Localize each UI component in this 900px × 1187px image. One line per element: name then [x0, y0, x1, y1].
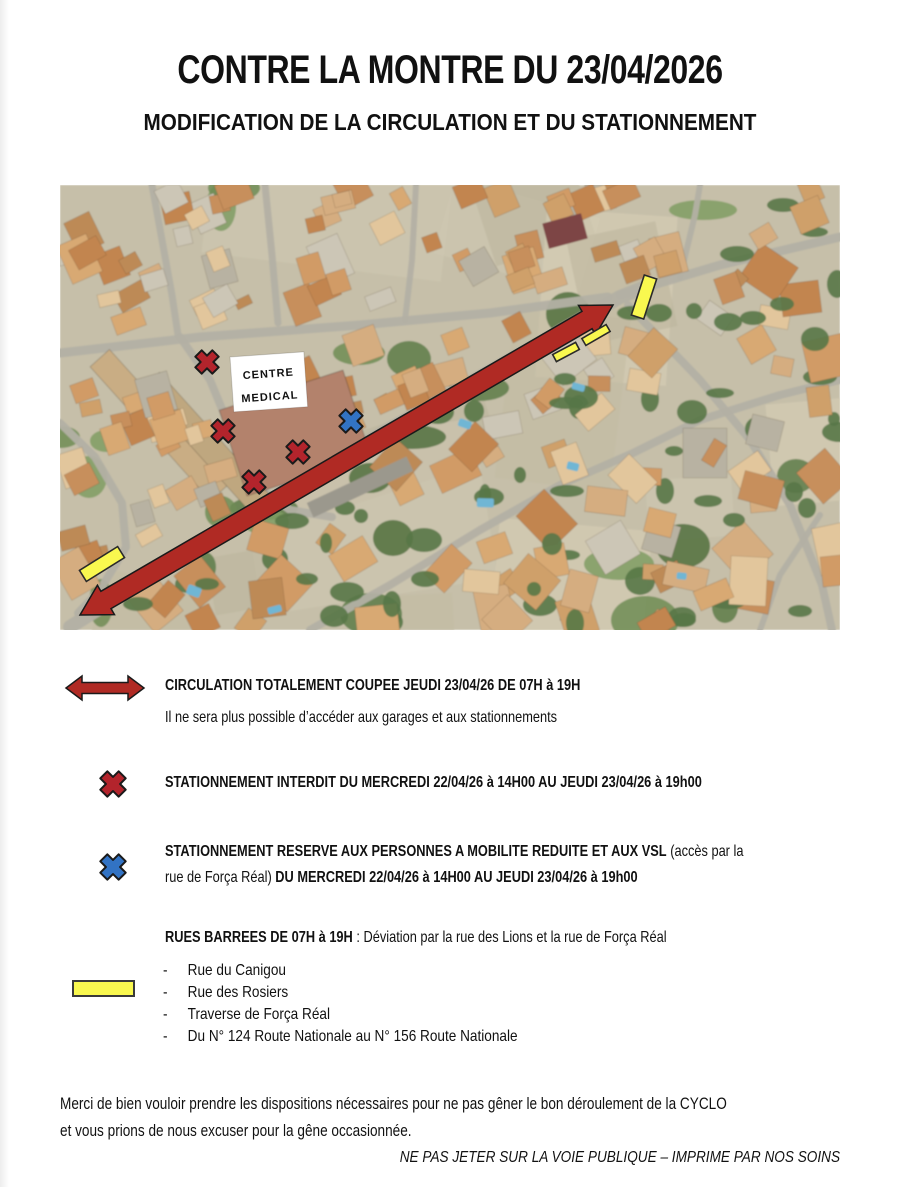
- legend-reserve-line2-bold: DU MERCREDI 22/04/26 à 14H00 AU JEUDI 23…: [275, 869, 637, 886]
- footer-line2: et vous prions de nous excuser pour la g…: [60, 1121, 412, 1141]
- legend-rues-heading: RUES BARREES DE 07H à 19H : Déviation pa…: [165, 928, 667, 948]
- page-title: CONTRE LA MONTRE DU 23/04/2026: [90, 48, 810, 93]
- legend-reserve-line2: rue de Força Réal) DU MERCREDI 22/04/26 …: [165, 868, 638, 888]
- map-image: CENTREMEDICAL: [60, 185, 840, 630]
- no-parking-x-icon: [98, 769, 128, 799]
- footer-line1: Merci de bien vouloir prendre les dispos…: [60, 1094, 727, 1114]
- street-item: Rue des Rosiers: [163, 983, 288, 1003]
- closed-road-arrow-icon: [62, 674, 148, 702]
- road-barrier-icon: [72, 980, 135, 997]
- scan-edge: [0, 0, 9, 1187]
- legend-reserve-line1: STATIONNEMENT RESERVE AUX PERSONNES A MO…: [165, 842, 743, 862]
- page-subtitle: MODIFICATION DE LA CIRCULATION ET DU STA…: [45, 109, 855, 136]
- page-root: CONTRE LA MONTRE DU 23/04/2026 MODIFICAT…: [0, 0, 900, 1187]
- disclaimer: NE PAS JETER SUR LA VOIE PUBLIQUE – IMPR…: [400, 1149, 840, 1167]
- centre-medical-label: CENTREMEDICAL: [230, 352, 308, 412]
- street-item: Traverse de Força Réal: [163, 1005, 330, 1025]
- reserved-parking-x-icon: [98, 852, 128, 882]
- legend-interdit-heading: STATIONNEMENT INTERDIT DU MERCREDI 22/04…: [165, 773, 702, 793]
- legend-reserve-line2-normal: rue de Força Réal): [165, 869, 272, 886]
- legend-reserve-line1-bold: STATIONNEMENT RESERVE AUX PERSONNES A MO…: [165, 843, 667, 860]
- legend-reserve-line1-normal: (accès par la: [670, 843, 743, 860]
- street-item: Du N° 124 Route Nationale au N° 156 Rout…: [163, 1027, 518, 1047]
- legend-rues-heading-bold: RUES BARREES DE 07H à 19H: [165, 929, 353, 946]
- legend-rues-heading-normal: : Déviation par la rue des Lions et la r…: [353, 929, 667, 946]
- legend-circulation-heading: CIRCULATION TOTALEMENT COUPEE JEUDI 23/0…: [165, 676, 580, 696]
- street-item: Rue du Canigou: [163, 961, 286, 981]
- legend-circulation-note: Il ne sera plus possible d’accéder aux g…: [165, 708, 557, 728]
- satellite-map-svg: CENTREMEDICAL: [60, 185, 840, 630]
